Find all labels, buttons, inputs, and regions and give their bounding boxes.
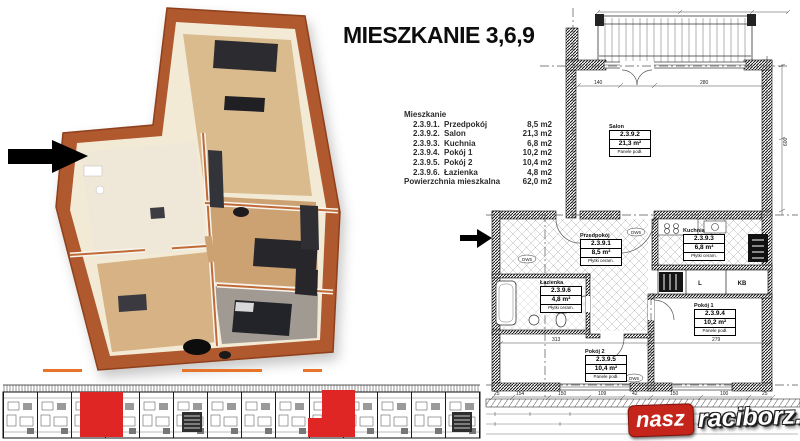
room-label-code: 2.3.9.6 [541,287,581,296]
room-label-floor: Panele podł. [586,374,626,381]
naszraciborz-watermark: nasz raciborz.pl [627,395,800,441]
dim-600: 600 [783,137,789,146]
room-label-box: 2.3.9.1 8,5 m² Płytki ceram. [580,239,622,266]
right-pointer-arrow-icon [460,229,492,248]
axis-centerlines [486,8,798,397]
room-label-area: 8,5 m² [581,249,621,258]
table-row: 2.3.9.1. Przedpokój 8,5 m2 [404,120,556,130]
room-label-floor: Płytki ceram. [684,253,724,260]
room-name: Pokój 1 [444,148,500,158]
room-area-table: Mieszkanie 2.3.9.1. Przedpokój 8,5 m2 2.… [404,110,556,187]
closet-label-l: L [698,281,702,287]
room-label-box: 2.3.9.2 21,3 m² Panele podł. [609,130,651,157]
table-row: 2.3.9.5. Pokój 2 10,4 m2 [404,158,556,168]
room-code: 2.3.9.6. [404,168,444,178]
highlighted-apartment-left [80,392,123,437]
room-name: Pokój 2 [444,158,500,168]
room-label-przedpokoj: Przedpokój 2.3.9.1 8,5 m² Płytki ceram. [580,233,622,266]
balcony [595,14,756,64]
table-row: 2.3.9.4. Pokój 1 10,2 m2 [404,148,556,158]
room-name: Salon [444,129,500,139]
table-row: 2.3.9.2. Salon 21,3 m2 [404,129,556,139]
room-label-floor: Płytki ceram. [581,258,621,265]
room-code: 2.3.9.1. [404,120,444,130]
room-area: 8,5 m2 [500,120,556,130]
dim-bottom-4: 42 [632,391,638,397]
floorplan-3d-render [56,8,340,370]
floorplan-artwork: 140 280 600 313 279 25 154 150 109 42 15… [0,0,800,441]
room-label-lazienka: Łazienka 2.3.9.6 4,8 m² Płytki ceram. [540,280,582,313]
room-label-box: 2.3.9.6 4,8 m² Płytki ceram. [540,286,582,313]
room-label-area: 4,8 m² [541,296,581,305]
table-row: 2.3.9.3. Kuchnia 6,8 m2 [404,139,556,149]
room-name: Łazienka [444,168,500,178]
room-label-code: 2.3.9.5 [586,356,626,365]
dim-bottom-3: 109 [598,391,607,397]
room-area: 6,8 m2 [500,139,556,149]
room-label-area: 6,8 m² [684,244,724,253]
room-name: Przedpokój [444,120,500,130]
room-label-area: 10,4 m² [586,365,626,374]
room-label-code: 2.3.9.2 [610,131,650,140]
dim-bottom-5: 150 [670,391,679,397]
dim-bottom-2: 150 [558,391,567,397]
door-label-dw5: DW5 [522,257,532,262]
room-area: 10,4 m2 [500,158,556,168]
walls [492,28,772,391]
room-label-code: 2.3.9.4 [695,310,735,319]
dim-bottom-1: 154 [516,391,525,397]
total-label: Powierzchnia mieszkalna [404,177,508,187]
room-label-floor: Panele podł. [695,328,735,335]
room-name: Kuchnia [444,139,500,149]
room-label-code: 2.3.9.1 [581,240,621,249]
room-label-box: 2.3.9.3 6,8 m² Płytki ceram. [683,234,725,261]
room-label-box: 2.3.9.4 10,2 m² Panele podł. [694,309,736,336]
table-header: Mieszkanie [404,110,556,120]
room-area: 10,2 m2 [500,148,556,158]
dim-313: 313 [552,337,561,343]
room-code: 2.3.9.3. [404,139,444,149]
total-area: 62,0 m2 [508,177,556,187]
room-label-pokoj1: Pokój 1 2.3.9.4 10,2 m² Panele podł. [694,303,736,336]
dim-280: 280 [700,80,709,86]
logo-nasz-badge: nasz [628,403,695,437]
dim-140: 140 [594,80,603,86]
door-label-dw6: DW6 [631,230,641,235]
room-label-kuchnia: Kuchnia 2.3.9.3 6,8 m² Płytki ceram. [683,228,725,261]
building-overview-strip [3,369,480,438]
room-label-box: 2.3.9.5 10,4 m² Panele podł. [585,355,627,382]
room-code: 2.3.9.4. [404,148,444,158]
door-label-dw6b: DW6 [629,376,639,381]
closet-label-kb: KB [738,281,747,287]
dim-bottom-0: 25 [494,391,500,397]
room-label-pokoj2: Pokój 2 2.3.9.5 10,4 m² Panele podł. [585,349,627,382]
table-total-row: Powierzchnia mieszkalna 62,0 m2 [404,177,556,187]
room-label-floor: Płytki ceram. [541,305,581,312]
table-row: 2.3.9.6. Łazienka 4,8 m2 [404,168,556,178]
logo-raciborz-text: raciborz.pl [697,400,800,433]
dim-bottom-6: 100 [720,391,729,397]
room-area: 21,3 m2 [500,129,556,139]
room-label-area: 21,3 m² [610,140,650,149]
room-label-code: 2.3.9.3 [684,235,724,244]
room-label-floor: Panele podł. [610,149,650,156]
room-area: 4,8 m2 [500,168,556,178]
page: 140 280 600 313 279 25 154 150 109 42 15… [0,0,800,441]
floorplan-2d: 140 280 600 313 279 25 154 150 109 42 15… [486,8,800,434]
room-code: 2.3.9.5. [404,158,444,168]
room-code: 2.3.9.2. [404,129,444,139]
room-label-salon: Salon 2.3.9.2 21,3 m² Panele podł. [609,124,651,157]
dim-279: 279 [712,337,721,343]
page-title: MIESZKANIE 3,6,9 [343,22,534,49]
room-label-area: 10,2 m² [695,319,735,328]
